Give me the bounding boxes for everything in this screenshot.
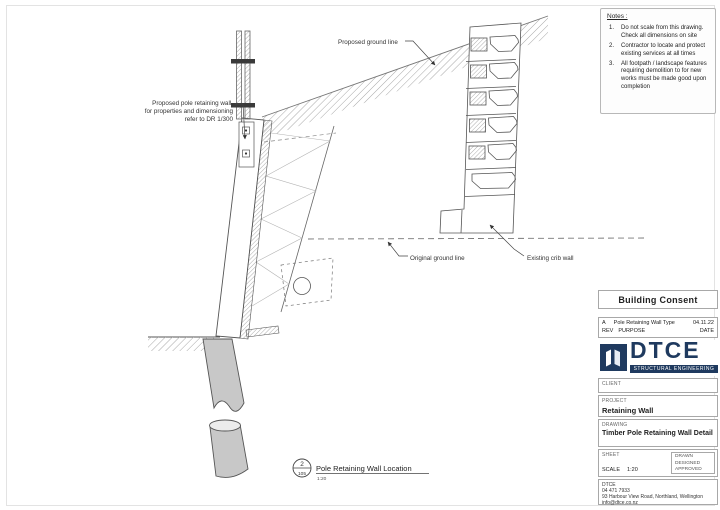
leader-original-ground <box>388 242 408 256</box>
revision-row: A Pole Retaining Wall Type 04.11.22 <box>602 320 714 328</box>
note-number: 1. <box>609 25 617 41</box>
drawing-sheet: Proposed ground line Proposed pole retai… <box>0 0 720 510</box>
sheet-scale-section: SHEET SCALE 1:20 DRAWN DESIGNED APPROVED <box>598 449 718 477</box>
note-text: Do not scale from this drawing. Check al… <box>621 25 712 41</box>
pole-lower-segment <box>210 424 248 477</box>
client-section: CLIENT <box>598 378 718 393</box>
note-item: 2. Contractor to locate and protect exis… <box>609 43 712 59</box>
note-text: All footpath / landscape features requir… <box>621 61 712 92</box>
project-section: PROJECT Retaining Wall <box>598 395 718 417</box>
note-number: 3. <box>609 61 617 92</box>
drainage-zone-dashed <box>281 258 333 306</box>
embedded-pole <box>203 339 248 477</box>
detail-callout: 2 105 Pole Retaining Wall Location 1:20 <box>293 459 429 482</box>
original-ground-line <box>308 238 648 239</box>
consent-text: Building Consent <box>618 295 697 305</box>
label-existing-crib-wall: Existing crib wall <box>527 255 574 262</box>
drawing-value: Timber Pole Retaining Wall Detail <box>602 430 714 437</box>
purpose-label: PURPOSE <box>618 328 645 336</box>
note-item: 3. All footpath / landscape features req… <box>609 61 712 92</box>
detail-number: 2 <box>300 461 304 468</box>
client-label: CLIENT <box>602 381 714 387</box>
label-proposed-wall-line3: refer to DR 1/300 <box>185 116 234 123</box>
firm-email: info@dtce.co.nz <box>602 500 714 506</box>
note-number: 2. <box>609 43 617 59</box>
drainage-pipe-circle <box>294 278 311 295</box>
project-label: PROJECT <box>602 398 714 404</box>
dtce-logo-icon <box>600 344 627 371</box>
revision-letter: A <box>602 320 606 328</box>
drawing-section: DRAWING Timber Pole Retaining Wall Detai… <box>598 419 718 447</box>
scale-line: SCALE 1:20 <box>602 467 638 473</box>
notes-title: Notes : <box>607 13 712 21</box>
revision-date: 04.11.22 <box>693 320 714 328</box>
note-text: Contractor to locate and protect existin… <box>621 43 712 59</box>
drawing-label: DRAWING <box>602 422 714 428</box>
label-proposed-ground-line: Proposed ground line <box>338 39 398 46</box>
signatures-box: DRAWN DESIGNED APPROVED <box>671 452 715 474</box>
revision-purpose: Pole Retaining Wall Type <box>614 320 675 328</box>
project-value: Retaining Wall <box>602 406 714 415</box>
rev-label: REV <box>602 328 613 336</box>
logo-tagline: STRUCTURAL ENGINEERING <box>630 365 718 373</box>
firm-contact-section: DTCE 04 471 7933 93 Harbour View Road, N… <box>598 479 718 505</box>
pole-break-ellipse <box>210 420 241 431</box>
scale-value: 1:20 <box>627 467 638 473</box>
revision-header-row: REV PURPOSE DATE <box>602 328 714 336</box>
revision-table: A Pole Retaining Wall Type 04.11.22 REV … <box>598 317 718 338</box>
bolt-dot-icon <box>245 152 247 154</box>
label-proposed-wall-line2: for properties and dimensioning <box>145 108 234 115</box>
pole-retaining-wall <box>216 118 279 339</box>
bolt-dot-icon <box>245 129 247 131</box>
detail-scale: 1:20 <box>317 476 327 482</box>
label-proposed-wall-line1: Proposed pole retaining wall, <box>152 100 233 107</box>
designed-label: DESIGNED <box>675 461 711 466</box>
bottom-waler <box>246 326 279 337</box>
title-block: Building Consent A Pole Retaining Wall T… <box>598 290 718 505</box>
consent-banner: Building Consent <box>598 290 718 309</box>
label-original-ground-line: Original ground line <box>410 255 465 262</box>
approved-label: APPROVED <box>675 467 711 472</box>
pole-upper-segment <box>203 339 244 411</box>
rail-bolt-bar <box>231 59 255 64</box>
notes-panel: Notes : 1. Do not scale from this drawin… <box>600 8 716 114</box>
detail-sheet-ref: 105 <box>298 471 306 477</box>
logo-wordmark: DTCE <box>630 337 701 364</box>
detail-title: Pole Retaining Wall Location <box>316 464 412 473</box>
scale-label: SCALE <box>602 467 620 473</box>
logo-block: DTCE STRUCTURAL ENGINEERING <box>598 340 718 376</box>
drawn-label: DRAWN <box>675 454 711 459</box>
date-label: DATE <box>700 328 714 336</box>
note-item: 1. Do not scale from this drawing. Check… <box>609 25 712 41</box>
